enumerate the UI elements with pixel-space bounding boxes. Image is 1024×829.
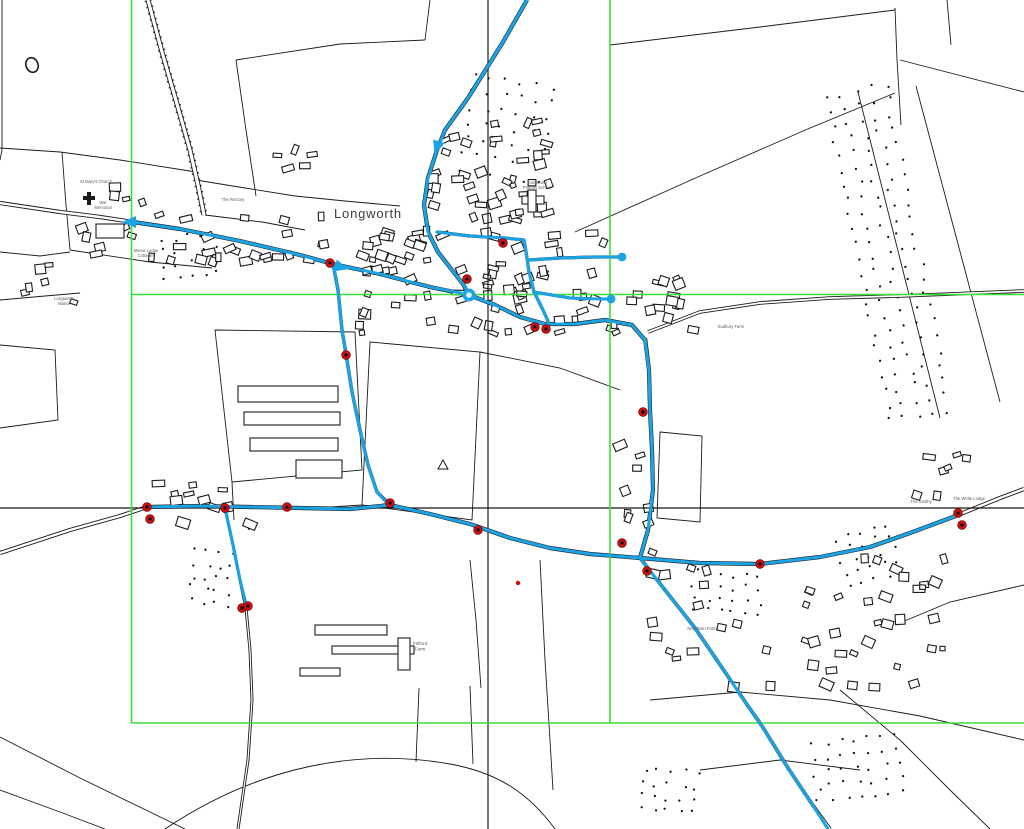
network-node[interactable] <box>618 253 627 262</box>
building <box>515 209 523 216</box>
hydrant-marker[interactable] <box>643 567 652 576</box>
hydrant-marker[interactable] <box>618 539 627 548</box>
building <box>379 233 389 241</box>
building <box>861 554 868 563</box>
hydrant-marker[interactable] <box>283 503 292 512</box>
building <box>359 330 365 336</box>
building <box>170 495 183 505</box>
building <box>645 305 656 316</box>
building <box>587 268 597 279</box>
building <box>717 623 726 631</box>
building <box>847 681 857 690</box>
building <box>391 302 400 308</box>
building <box>633 465 642 471</box>
building <box>318 212 324 221</box>
building <box>762 646 771 655</box>
building <box>627 297 637 305</box>
hydrant-marker[interactable] <box>386 499 395 508</box>
building <box>693 601 704 610</box>
building <box>539 266 548 277</box>
building <box>109 191 119 201</box>
building <box>874 619 882 626</box>
building <box>505 328 512 335</box>
building <box>650 632 662 641</box>
building <box>279 215 289 224</box>
building-large <box>528 190 536 212</box>
building <box>25 283 32 292</box>
building <box>496 261 506 266</box>
building <box>672 656 681 661</box>
hydrant-marker[interactable] <box>474 526 483 535</box>
building-large <box>238 386 338 402</box>
hydrant-marker[interactable] <box>146 515 155 524</box>
building <box>166 256 175 265</box>
hydrant-marker[interactable] <box>756 560 765 569</box>
building <box>807 660 819 671</box>
building <box>484 321 493 331</box>
building <box>282 229 293 237</box>
building-large <box>250 438 338 451</box>
red-point-marker[interactable] <box>516 581 520 585</box>
building <box>307 151 318 157</box>
network-node[interactable] <box>607 295 616 304</box>
building <box>894 663 901 670</box>
building <box>272 254 283 260</box>
building <box>522 283 530 289</box>
building-large <box>315 625 387 635</box>
building <box>647 617 658 627</box>
building <box>829 628 840 638</box>
building <box>216 253 221 262</box>
building <box>864 597 873 605</box>
building <box>82 232 91 243</box>
building <box>557 247 563 256</box>
building <box>534 151 543 160</box>
building <box>319 240 329 249</box>
hydrant-marker[interactable] <box>958 521 967 530</box>
building <box>195 254 207 265</box>
building <box>41 278 49 286</box>
place-label: The Rectory <box>222 197 246 202</box>
building <box>826 667 837 674</box>
building <box>666 296 679 307</box>
building <box>548 231 560 239</box>
map-background <box>0 0 1024 829</box>
hydrant-marker[interactable] <box>954 509 963 518</box>
place-label: New Barn Farm <box>687 626 717 631</box>
building <box>45 262 53 267</box>
town-name-label: Longworth <box>334 206 402 221</box>
building <box>490 120 498 127</box>
building-large <box>300 668 340 676</box>
building <box>452 176 464 183</box>
building <box>699 581 708 589</box>
building <box>802 601 809 608</box>
building <box>273 153 282 158</box>
building <box>423 257 431 263</box>
building <box>899 572 909 581</box>
building <box>869 683 880 691</box>
building <box>766 681 775 690</box>
building <box>482 213 492 224</box>
building <box>687 325 699 334</box>
building-large <box>296 460 342 478</box>
building <box>405 295 417 301</box>
building <box>940 646 945 650</box>
building <box>189 482 197 488</box>
place-label: The White Lodge <box>953 496 986 501</box>
hydrant-marker[interactable] <box>542 325 551 334</box>
building <box>835 650 847 657</box>
building-large <box>244 412 340 425</box>
building <box>663 312 674 323</box>
building <box>490 136 502 142</box>
building <box>586 230 599 237</box>
building-large <box>398 638 410 670</box>
place-label: Sudbury Farm <box>718 324 745 329</box>
building <box>448 325 458 333</box>
hydrant-marker[interactable] <box>499 239 508 248</box>
building <box>109 183 120 192</box>
building <box>923 453 936 460</box>
building <box>533 129 541 136</box>
building <box>475 202 487 208</box>
building <box>122 196 130 201</box>
building <box>687 648 699 655</box>
hydrant-marker[interactable] <box>326 259 335 268</box>
hydrant-marker[interactable] <box>342 351 351 360</box>
building <box>732 619 742 628</box>
building <box>572 316 578 323</box>
building <box>431 183 440 193</box>
building <box>173 244 185 250</box>
hydrant-marker[interactable] <box>531 323 540 332</box>
building <box>920 585 926 590</box>
building <box>355 321 363 329</box>
place-label: The Smithy <box>910 499 932 504</box>
building <box>928 613 940 623</box>
hydrant-marker[interactable] <box>221 504 230 513</box>
hydrant-marker[interactable] <box>143 503 152 512</box>
place-label: St Mary's Church <box>80 179 113 184</box>
map-canvas[interactable]: St Mary's ChurchWarMemorialThe RectoryMa… <box>0 0 1024 829</box>
roundabout-node-center <box>466 292 472 298</box>
building <box>240 214 249 221</box>
building <box>503 285 514 295</box>
building <box>426 317 435 326</box>
building <box>927 645 936 653</box>
map-viewport[interactable]: St Mary's ChurchWarMemorialThe RectoryMa… <box>0 0 1024 829</box>
building-large <box>96 224 124 238</box>
building <box>517 157 529 163</box>
hydrant-marker[interactable] <box>639 408 648 417</box>
building <box>363 242 374 250</box>
building <box>300 163 311 169</box>
building <box>35 264 46 275</box>
building <box>962 454 970 461</box>
building <box>218 488 227 492</box>
building <box>933 491 941 500</box>
building <box>895 614 905 624</box>
building <box>152 480 165 487</box>
building <box>449 132 460 141</box>
building <box>424 291 432 300</box>
hydrant-marker[interactable] <box>244 602 253 611</box>
hydrant-marker[interactable] <box>463 275 472 284</box>
